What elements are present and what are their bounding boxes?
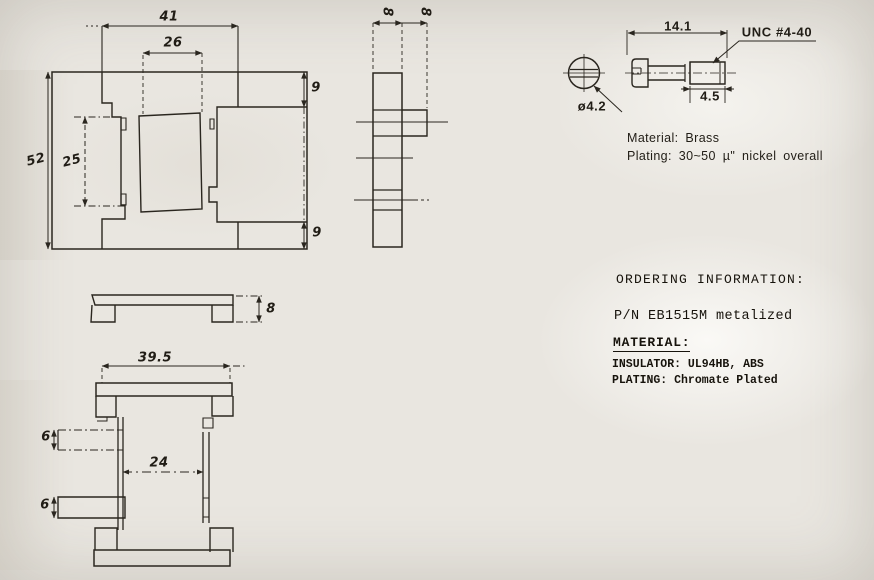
material-heading: MATERIAL:: [613, 335, 690, 352]
dim-label-flange-bottom: 9: [312, 226, 322, 241]
dim-label-head-dia: ø4.2: [578, 99, 606, 114]
part-number: P/N EB1515M metalized: [614, 309, 793, 324]
ordering-heading: ORDERING INFORMATION:: [616, 272, 805, 287]
dim-label-front-opening: 26: [163, 36, 182, 51]
dim-label-thread-length: 4.5: [700, 89, 720, 104]
side-view: [354, 23, 448, 247]
plating-line: PLATING: Chromate Plated: [612, 374, 778, 387]
dim-label-inner-width: 24: [149, 456, 168, 471]
material-note: Material: Brass: [627, 131, 719, 145]
drawing-sheet: 41 26 9 52 25 9 8 8 8 39.5 6 24 6 ø4.2 1…: [0, 0, 874, 580]
dim-label-bottom-width: 39.5: [138, 351, 172, 366]
dim-label-front-width: 41: [159, 10, 178, 25]
bracket-view: [91, 295, 263, 322]
insulator-line: INSULATOR: UL94HB, ABS: [612, 358, 764, 371]
dim-label-tab-upper: 6: [41, 430, 51, 445]
plating-note: Plating: 30~50 µ" nickel overall: [627, 149, 823, 163]
dim-label-depth-front: 8: [380, 7, 395, 17]
front-view: [48, 26, 307, 249]
dim-label-tab-lower: 6: [40, 498, 50, 513]
dim-label-depth-rear: 8: [418, 7, 433, 17]
thread-spec-label: UNC #4-40: [742, 25, 812, 40]
dim-label-flange-top: 9: [311, 81, 321, 96]
dim-label-bracket-height: 8: [266, 302, 276, 317]
drawing-linework: [0, 0, 874, 580]
dim-label-screw-length: 14.1: [664, 19, 692, 34]
